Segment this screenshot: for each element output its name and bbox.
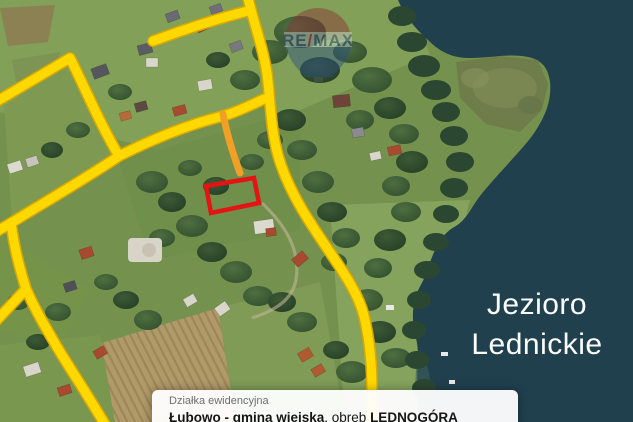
remax-wordmark: RE/MAX [282, 31, 354, 50]
parcel-info-caption: Działka ewidencyjna [169, 395, 518, 408]
district-name: LEDNOGÓRA [370, 410, 458, 422]
parcel-info-panel[interactable]: Działka ewidencyjna Łubowo - gmina wiejs… [152, 390, 518, 422]
lake-label-line2: Lednickie [471, 328, 602, 361]
map-canvas: RE/MAX Jezioro Lednickie [0, 0, 633, 422]
municipality-name: Łubowo - gmina wiejska [169, 410, 324, 422]
lake-label-line1: Jezioro [487, 288, 587, 321]
parcel-info-title: Łubowo - gmina wiejska, obręb LEDNOGÓRA [169, 409, 518, 422]
district-separator: , obręb [324, 410, 370, 422]
balloon-basket [314, 77, 323, 82]
satellite-map[interactable]: RE/MAX Jezioro Lednickie Działka ewidenc… [0, 0, 633, 422]
